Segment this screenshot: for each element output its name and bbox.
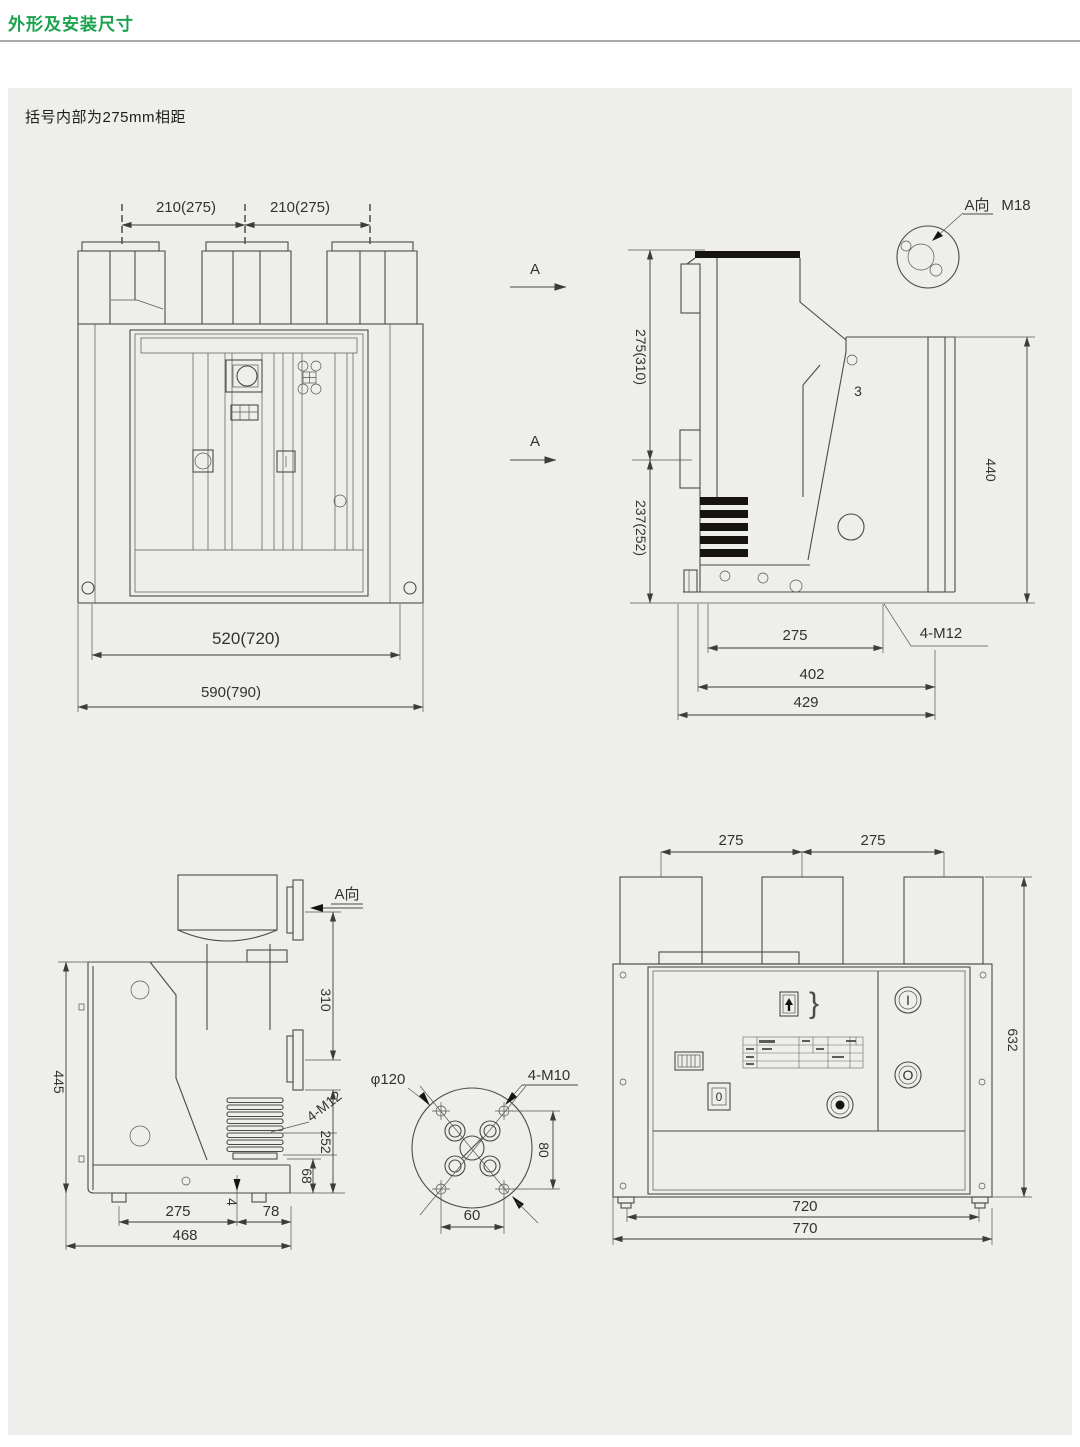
dim-hole-span: 275 <box>782 627 807 644</box>
dim-overall-width-rear: 770 <box>792 1220 817 1237</box>
section-label-a-bottom: A <box>530 433 540 450</box>
dim-mount-width: 520(720) <box>212 629 280 648</box>
dim-flange-pitch: 310 <box>318 988 334 1012</box>
open-button-label: O <box>903 1067 914 1083</box>
callout-3: 3 <box>854 383 862 399</box>
detail-thread-label: M18 <box>1001 197 1030 214</box>
catalog-page: 外形及安装尺寸 括号内部为275mm相距 210(275) 210(275) <box>0 0 1080 1447</box>
bolt-spec-label: 4-M12 <box>920 625 963 642</box>
view-direction-label: A向 <box>334 886 359 903</box>
flange-detail-drawing: φ120 4-M10 80 60 <box>371 1067 578 1234</box>
dim-foot-span-rear: 720 <box>792 1198 817 1215</box>
dim-lower-span: 252 <box>318 1130 334 1154</box>
dim-offset: 4 <box>224 1198 240 1206</box>
dim-pole-pitch-left: 210(275) <box>156 199 216 216</box>
dim-overhang: 78 <box>263 1203 280 1220</box>
dim-overall-height: 632 <box>1005 1028 1021 1052</box>
flange-bolt-spec-label: 4-M10 <box>528 1067 571 1084</box>
title-divider <box>0 40 1080 42</box>
left-side-view-drawing: A向 310 252 68 4-M12 445 4 275 78 4 <box>51 875 363 1250</box>
dim-foot-span: 275 <box>165 1203 190 1220</box>
dim-hole-pitch-h: 60 <box>464 1207 481 1224</box>
dim-plate-height: 440 <box>983 458 999 482</box>
technical-drawing-svg: 210(275) 210(275) <box>0 88 1080 1447</box>
dim-foot-height: 68 <box>299 1168 315 1184</box>
rear-pole-pitch-right: 275 <box>860 832 885 849</box>
dim-depth-mid: 402 <box>799 666 824 683</box>
switch-label: 0 <box>716 1090 723 1104</box>
dim-upper-height: 275(310) <box>633 329 649 385</box>
rear-view-drawing: 275 275 } I O <box>613 832 1032 1245</box>
bracket-mark: } <box>809 987 819 1020</box>
flange-diameter-label: φ120 <box>371 1071 406 1088</box>
dim-pole-pitch-right: 210(275) <box>270 199 330 216</box>
detail-view-label: A向 <box>964 197 989 214</box>
side-view-drawing: A A 3 <box>510 197 1035 720</box>
dim-depth-overall: 429 <box>793 694 818 711</box>
dim-overall-width: 590(790) <box>201 684 261 701</box>
page-title: 外形及安装尺寸 <box>8 10 134 35</box>
front-view-drawing: 210(275) 210(275) <box>78 199 423 712</box>
dim-overall-depth: 468 <box>172 1227 197 1244</box>
rear-pole-pitch-left: 275 <box>718 832 743 849</box>
bolt-spec-left-label: 4-M12 <box>303 1087 344 1124</box>
dim-hole-pitch-v: 80 <box>536 1142 552 1158</box>
nameplate <box>743 1037 863 1068</box>
close-button-label: I <box>906 992 910 1008</box>
dim-lower-height: 237(252) <box>633 500 649 556</box>
section-label-a-top: A <box>530 261 540 278</box>
dim-body-height: 445 <box>51 1070 67 1094</box>
